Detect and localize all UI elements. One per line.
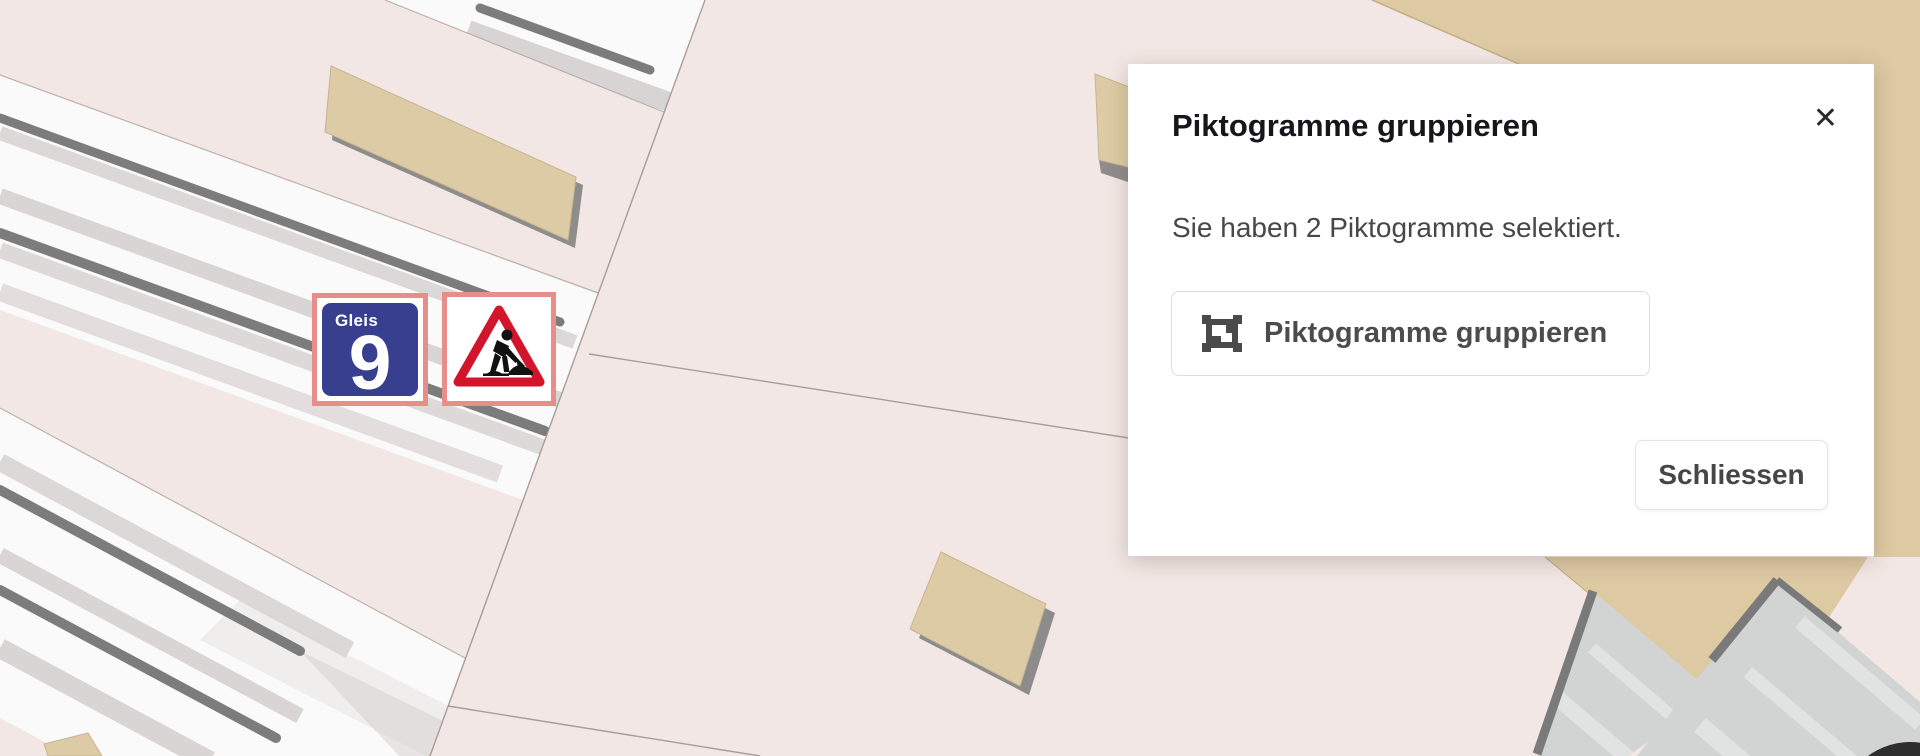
group-button-label: Piktogramme gruppieren xyxy=(1264,317,1607,350)
building-near-dialog xyxy=(1095,74,1132,183)
platform-sign-number: 9 xyxy=(322,325,418,402)
platform-sign: Gleis 9 xyxy=(322,303,418,396)
group-icon xyxy=(1202,314,1242,354)
construction-warning-icon xyxy=(449,299,549,399)
pictogram-platform-sign[interactable]: Gleis 9 xyxy=(312,293,428,406)
dialog-title: Piktogramme gruppieren xyxy=(1172,108,1539,144)
schliessen-button[interactable]: Schliessen xyxy=(1635,440,1828,510)
pictogram-construction-sign[interactable] xyxy=(442,292,556,406)
group-pictograms-dialog: Piktogramme gruppieren ✕ Sie haben 2 Pik… xyxy=(1128,64,1874,556)
station-map-canvas[interactable]: Gleis 9 Piktogramme gruppieren ✕ Sie hab… xyxy=(0,0,1920,756)
dialog-body-text: Sie haben 2 Piktogramme selektiert. xyxy=(1172,212,1622,244)
close-icon[interactable]: ✕ xyxy=(1813,104,1838,134)
group-pictograms-button[interactable]: Piktogramme gruppieren xyxy=(1171,291,1650,376)
